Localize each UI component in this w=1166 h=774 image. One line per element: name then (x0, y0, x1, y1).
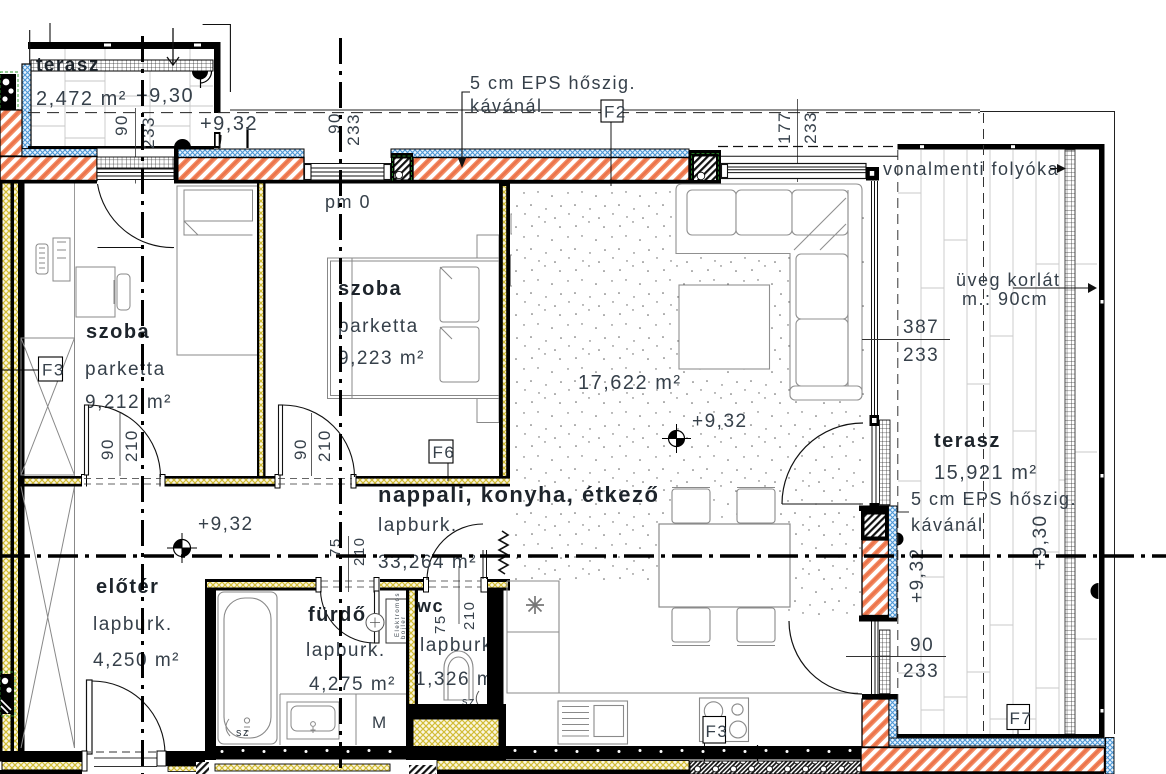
svg-text:4,275 m²: 4,275 m² (309, 674, 396, 695)
svg-text:lapburk.: lapburk. (306, 640, 386, 661)
svg-text:M: M (372, 713, 388, 732)
svg-text:wc: wc (416, 596, 444, 616)
svg-text:15,921 m²: 15,921 m² (934, 462, 1038, 484)
svg-text:210: 210 (315, 429, 334, 462)
svg-text:sz: sz (236, 727, 250, 739)
svg-text:210: 210 (122, 429, 141, 462)
svg-text:233: 233 (903, 345, 939, 366)
svg-text:parketta: parketta (338, 316, 419, 337)
svg-text:F7: F7 (1010, 709, 1033, 728)
svg-text:233: 233 (344, 113, 363, 146)
svg-text:lapburk.: lapburk. (93, 614, 173, 635)
svg-text:+9,32: +9,32 (198, 514, 254, 535)
svg-text:4,250 m²: 4,250 m² (93, 650, 180, 671)
svg-text:szoba: szoba (86, 321, 150, 343)
svg-text:210: 210 (461, 600, 478, 630)
svg-text:terasz: terasz (934, 430, 1001, 452)
svg-text:233: 233 (801, 111, 820, 144)
svg-text:fürdő: fürdő (308, 604, 367, 626)
svg-text:90: 90 (98, 438, 117, 460)
svg-text:lapburk.: lapburk. (378, 515, 458, 536)
svg-text:17,622 m²: 17,622 m² (578, 372, 682, 394)
svg-text:90: 90 (291, 438, 310, 460)
svg-text:kávánál: kávánál (911, 515, 984, 535)
svg-text:nappali, konyha, étkező: nappali, konyha, étkező (378, 482, 659, 507)
svg-text:szoba: szoba (338, 278, 402, 300)
svg-text:üveg korlát: üveg korlát (956, 270, 1061, 290)
svg-text:75: 75 (432, 614, 449, 634)
svg-text:233: 233 (903, 661, 939, 682)
svg-text:F3: F3 (42, 361, 65, 380)
svg-text:F6: F6 (433, 443, 456, 462)
svg-text:177: 177 (775, 111, 794, 144)
svg-text:terasz: terasz (36, 55, 100, 76)
svg-text:pm 0: pm 0 (325, 192, 371, 212)
svg-text:parketta: parketta (85, 359, 166, 380)
svg-text:+9,32: +9,32 (200, 113, 258, 135)
svg-text:9,223 m²: 9,223 m² (338, 348, 425, 369)
svg-text:F3: F3 (706, 722, 729, 741)
svg-text:F2: F2 (604, 103, 627, 122)
svg-text:2,472 m²: 2,472 m² (36, 88, 127, 110)
svg-text:kávánál: kávánál (470, 96, 543, 116)
svg-text:90: 90 (112, 114, 131, 136)
svg-text:+9,32: +9,32 (692, 411, 748, 432)
svg-text:9,212 m²: 9,212 m² (85, 392, 172, 413)
svg-text:+9,30: +9,30 (1030, 514, 1051, 570)
svg-text:387: 387 (903, 317, 939, 338)
svg-text:90: 90 (910, 635, 934, 656)
svg-text:vonalmenti folyóka: vonalmenti folyóka (883, 159, 1059, 179)
svg-text:+9,30: +9,30 (136, 85, 194, 107)
svg-text:5 cm EPS hőszig.: 5 cm EPS hőszig. (911, 489, 1077, 509)
svg-text:előtér: előtér (96, 576, 159, 598)
svg-text:210: 210 (351, 536, 368, 566)
svg-text:m.: 90cm: m.: 90cm (962, 289, 1048, 309)
svg-text:5 cm EPS hőszig.: 5 cm EPS hőszig. (470, 73, 636, 93)
